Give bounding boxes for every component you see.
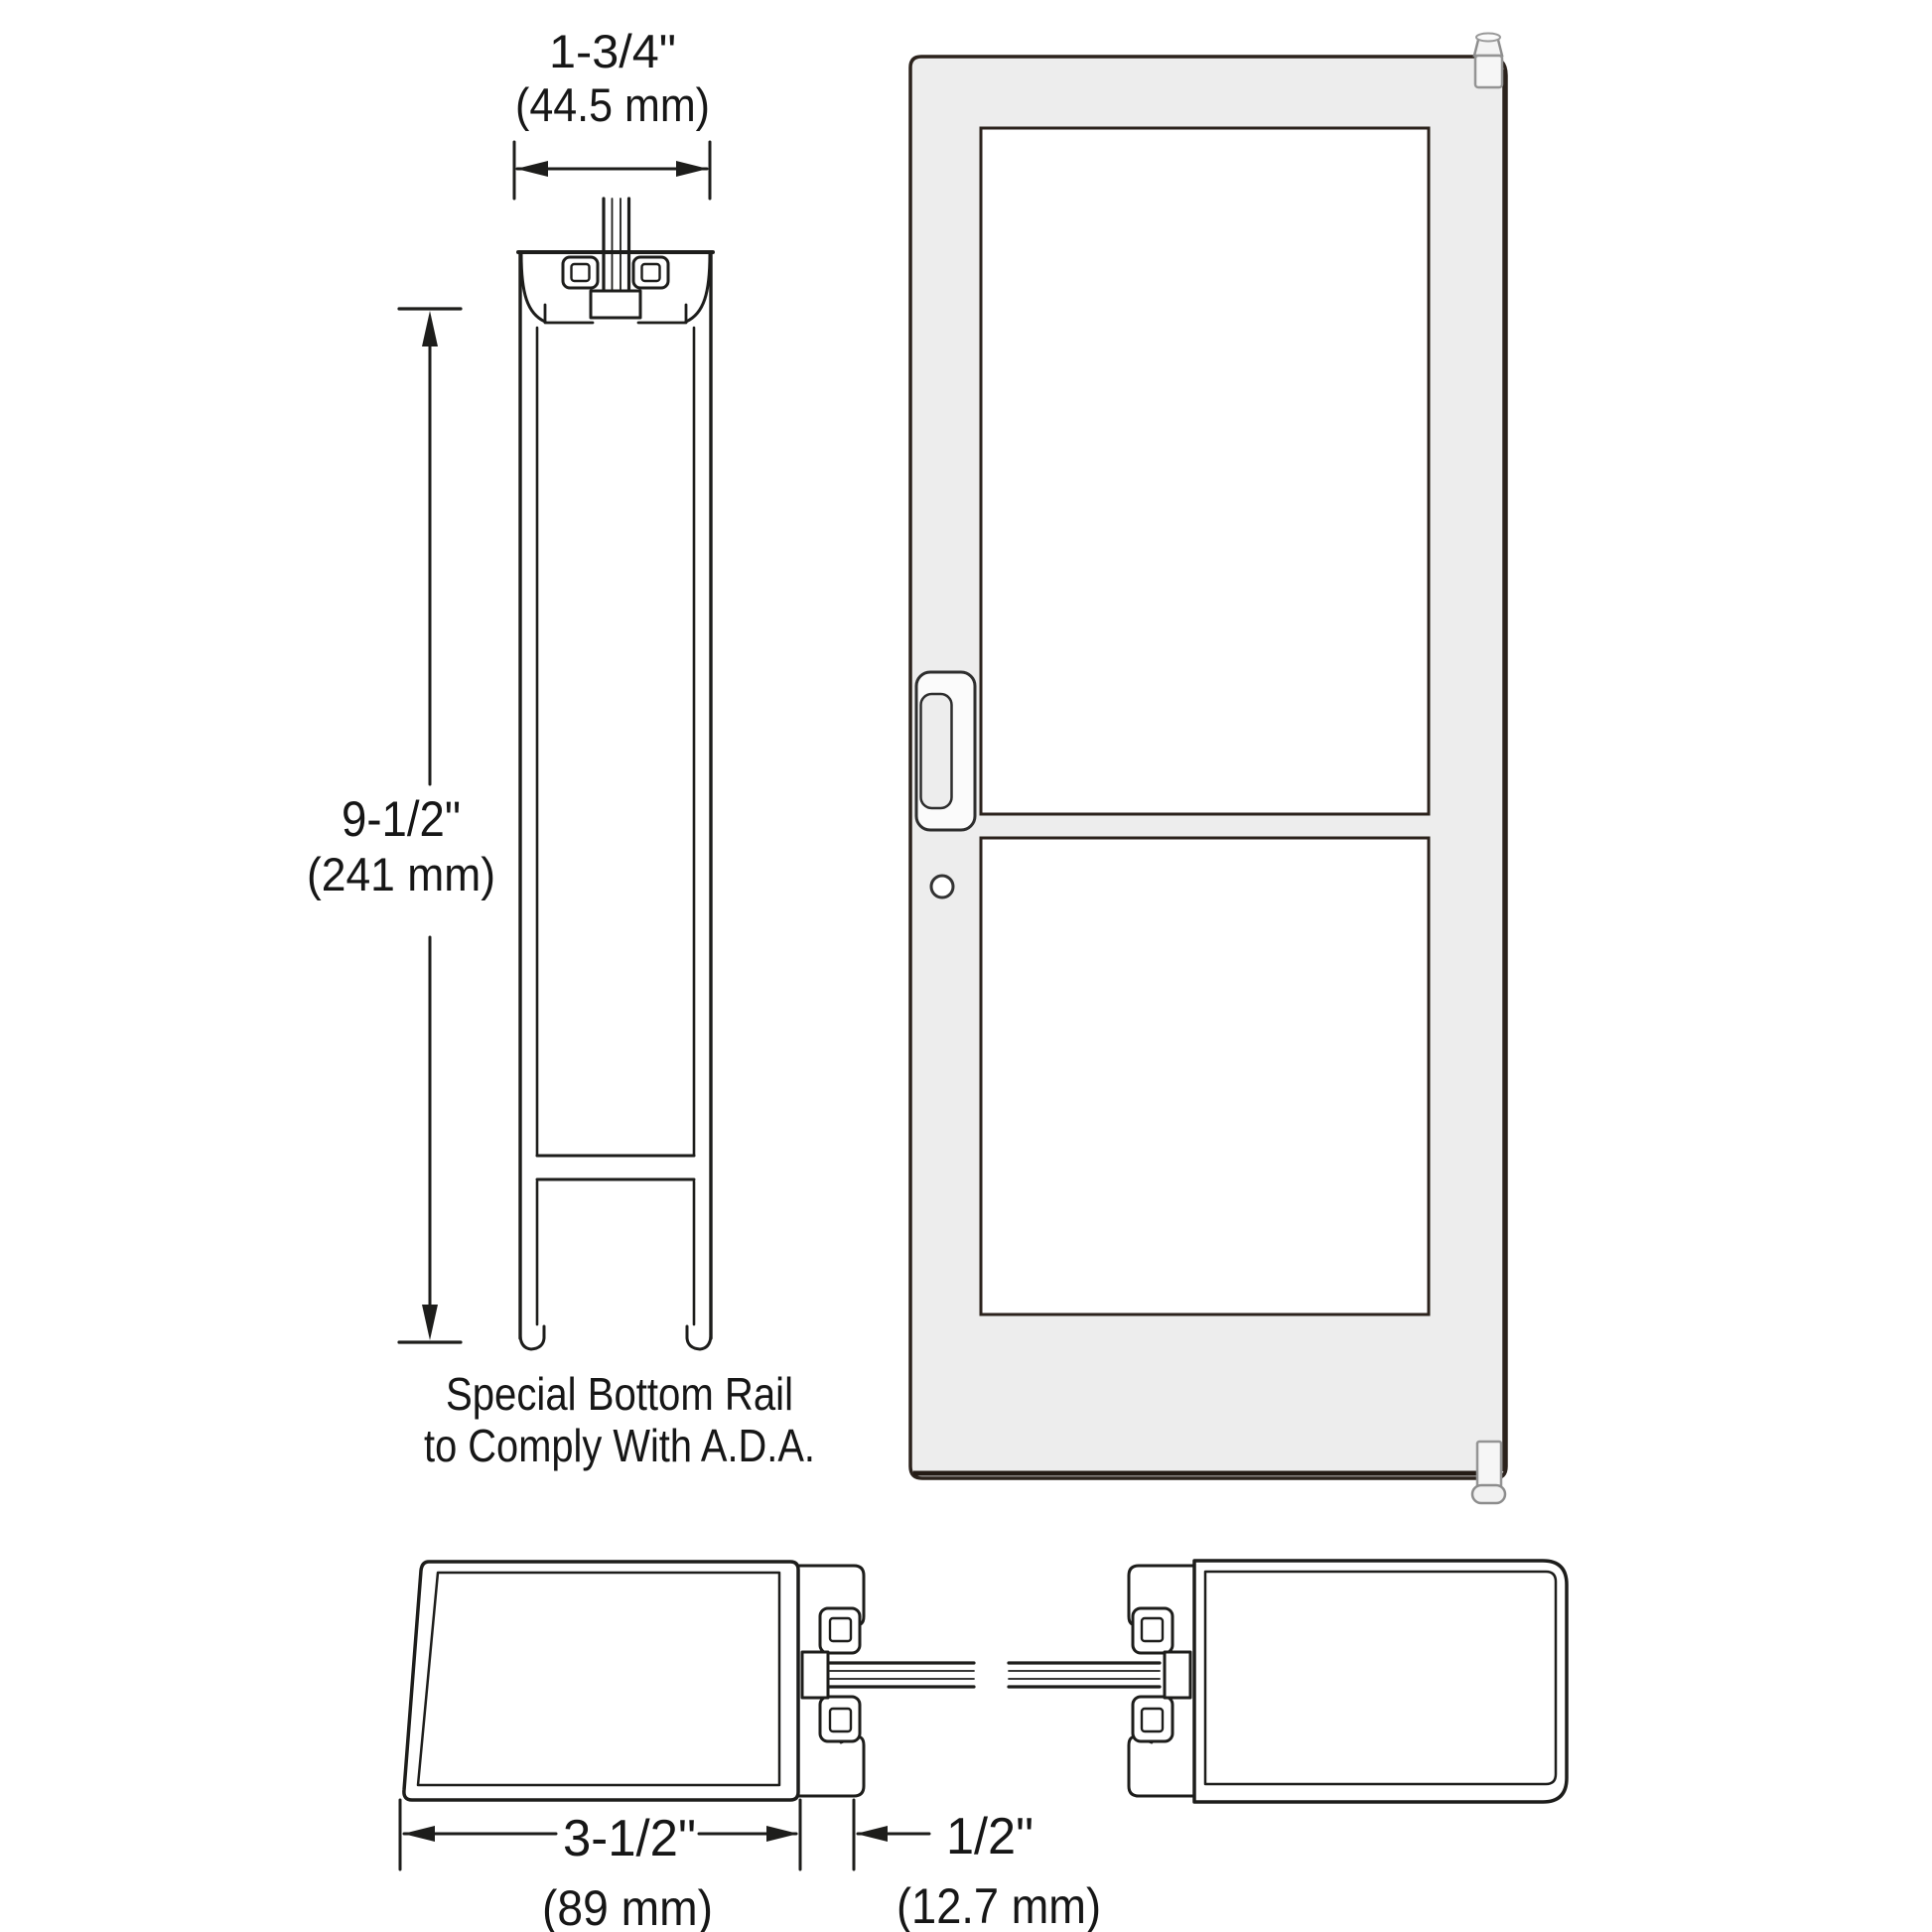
glass-edge-lines	[604, 199, 629, 292]
arrowhead-right	[766, 1826, 798, 1842]
right-clamp-lower	[1133, 1697, 1173, 1741]
stile-section	[404, 1561, 1567, 1802]
drawing-canvas: 1-3/4" (44.5 mm) 9-1/2" (241 mm) Special…	[0, 0, 1932, 1932]
gasket-clamp-right	[633, 257, 668, 288]
arrowhead-left	[516, 161, 548, 177]
arrowhead-gap-left	[856, 1826, 888, 1842]
thickness-dimension	[514, 142, 710, 199]
pocket-wall-left	[521, 254, 545, 322]
ada-note-line2: to Comply With A.D.A.	[424, 1420, 815, 1471]
lock-cylinder	[931, 876, 953, 897]
gap-imperial-label: 1/2"	[946, 1808, 1034, 1865]
arrowhead-right	[676, 161, 708, 177]
thickness-imperial-label: 1-3/4"	[549, 25, 676, 77]
rail-foot-right	[687, 1326, 711, 1349]
bottom-rail-section	[518, 199, 713, 1349]
left-clamp-lower	[820, 1697, 860, 1741]
pull-handle	[916, 672, 975, 830]
door-technical-drawing: 1-3/4" (44.5 mm) 9-1/2" (241 mm) Special…	[0, 0, 1932, 1932]
setting-block	[591, 291, 640, 318]
arrowhead-left	[403, 1826, 435, 1842]
left-stile-outer	[404, 1562, 798, 1800]
top-pivot-cap	[1476, 34, 1500, 42]
arrowhead-down	[422, 1305, 438, 1340]
left-clamp-upper	[820, 1608, 860, 1653]
top-pivot-body	[1475, 56, 1502, 87]
stile-width-imperial-label: 3-1/2"	[563, 1810, 696, 1867]
door-elevation	[910, 34, 1506, 1504]
right-pocket-bottom-wall	[1129, 1736, 1194, 1796]
right-stile-outer	[1194, 1561, 1567, 1802]
pocket-wall-right	[686, 254, 710, 322]
glass-lite-lower	[981, 838, 1429, 1314]
stile-width-metric-label: (89 mm)	[542, 1880, 713, 1932]
section-glass-right	[1009, 1663, 1160, 1687]
rail-internal-web	[537, 1156, 694, 1179]
top-pivot	[1474, 34, 1502, 88]
glass-lite-upper	[981, 128, 1429, 814]
right-clamp-upper	[1133, 1608, 1173, 1653]
rail-foot-left	[520, 1326, 544, 1349]
bottom-pivot	[1472, 1442, 1505, 1503]
pocket-shelf-right	[638, 305, 686, 323]
rail-height-metric-label: (241 mm)	[307, 848, 495, 900]
left-setting-block	[802, 1652, 828, 1698]
bottom-pivot-foot	[1472, 1485, 1505, 1503]
bottom-pivot-body	[1477, 1442, 1501, 1488]
pocket-shelf-left	[545, 305, 593, 323]
gasket-clamp-left	[563, 257, 598, 288]
left-pocket-bottom-wall	[798, 1736, 864, 1796]
section-glass-left	[830, 1663, 974, 1687]
pull-handle-cutout	[921, 694, 952, 808]
right-setting-block	[1165, 1652, 1190, 1698]
rail-height-imperial-label: 9-1/2"	[342, 791, 461, 847]
ada-note-line1: Special Bottom Rail	[446, 1368, 793, 1420]
thickness-metric-label: (44.5 mm)	[515, 78, 710, 131]
arrowhead-up	[422, 311, 438, 346]
gap-metric-label: (12.7 mm)	[897, 1878, 1101, 1932]
